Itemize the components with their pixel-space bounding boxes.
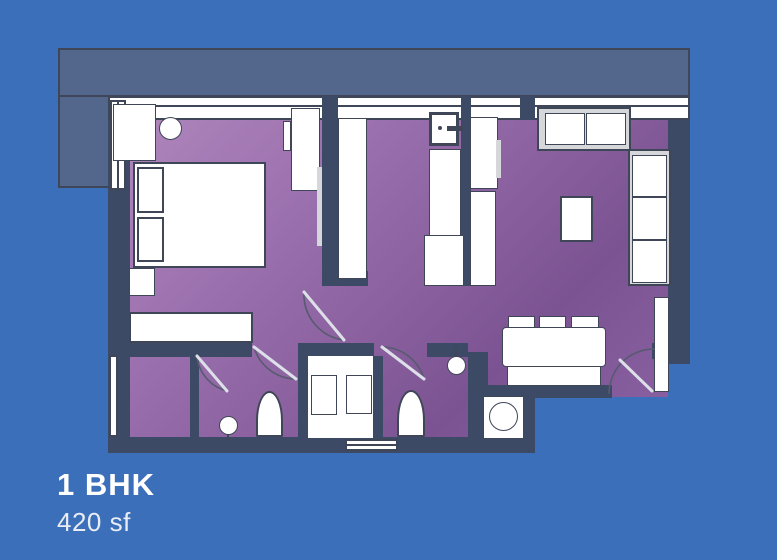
window-bottom	[345, 439, 398, 451]
niche-cabinet-2	[346, 375, 372, 414]
wall-mid-right	[427, 343, 468, 357]
wall-closet	[190, 356, 199, 438]
loveseat-cushion-1	[545, 113, 585, 145]
wall-mid-left	[108, 343, 252, 357]
washing-machine-drum	[489, 402, 518, 431]
wall-mid-center	[298, 343, 374, 357]
sink-1	[219, 416, 238, 435]
sofa-cushion-1	[632, 155, 667, 197]
floor-plan-card: 1 BHK 420 sf	[0, 0, 777, 560]
pillow-1	[137, 167, 164, 213]
coffee-table	[560, 196, 593, 242]
window-mullion-1	[322, 96, 338, 120]
wall-bath2	[373, 356, 383, 438]
entry-door-leaf	[654, 297, 669, 392]
kitchen-counter	[429, 149, 461, 236]
dining-table	[502, 327, 606, 367]
niche-cabinet-1	[311, 375, 337, 415]
window-mullion-3	[520, 96, 535, 120]
pillow-2	[137, 217, 164, 262]
terrace-slab-top	[58, 48, 690, 97]
sofa-cushion-3	[632, 240, 667, 283]
wall-bedroom-partition	[322, 116, 338, 276]
stove	[424, 235, 464, 286]
tv-panel	[317, 167, 322, 246]
bedroom-wardrobe	[113, 104, 156, 161]
faucet-icon	[447, 126, 463, 131]
plan-title: 1 BHK	[57, 467, 155, 503]
dresser	[129, 312, 253, 343]
bedroom-stool	[159, 117, 182, 140]
faucet-dot-icon	[438, 126, 442, 130]
cabinet-handle	[496, 140, 501, 178]
wall-bath1	[298, 356, 308, 438]
window-bottom-line	[347, 444, 396, 446]
kitchen-cabinet-lower	[470, 191, 496, 286]
loveseat-cushion-2	[586, 113, 626, 145]
sofa-cushion-2	[632, 197, 667, 240]
wall-right	[668, 96, 690, 364]
sink-2	[447, 356, 466, 375]
kitchen-cabinet-upper	[470, 117, 498, 189]
hall-closet	[338, 118, 367, 279]
nightstand	[129, 268, 155, 296]
bedroom-shelf	[283, 121, 291, 151]
bedroom-closet	[291, 108, 320, 191]
window-left-bottom	[109, 355, 118, 437]
plan-area: 420 sf	[57, 507, 131, 538]
dining-bench	[507, 366, 601, 386]
